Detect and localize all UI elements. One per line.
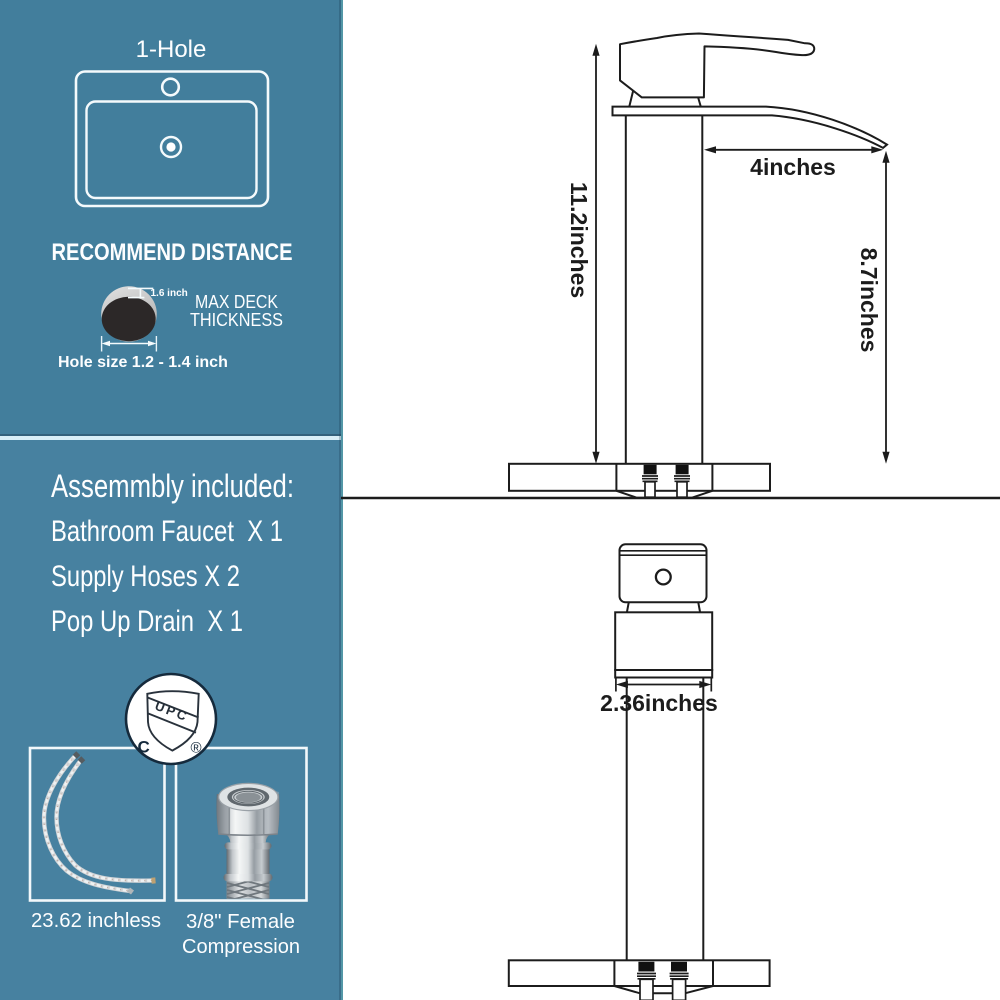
svg-text:®: ® (191, 740, 202, 757)
svg-text:Bathroom Faucet X 1: Bathroom Faucet X 1 (51, 515, 283, 548)
svg-text:Hole size 1.2 - 1.4 inch: Hole size 1.2 - 1.4 inch (58, 354, 228, 371)
svg-text:3/8" Female: 3/8" Female (186, 911, 295, 933)
svg-text:THICKNESS: THICKNESS (190, 310, 283, 330)
svg-text:C: C (138, 738, 150, 757)
svg-text:1.6 inch: 1.6 inch (151, 288, 188, 299)
svg-text:23.62 inchless: 23.62 inchless (31, 910, 161, 932)
svg-text:2.36inches: 2.36inches (600, 690, 718, 716)
svg-text:Supply Hoses X 2: Supply Hoses X 2 (51, 560, 240, 593)
svg-text:1-Hole: 1-Hole (136, 36, 207, 63)
svg-text:11.2inches: 11.2inches (566, 182, 592, 298)
svg-text:MAX DECK: MAX DECK (195, 292, 278, 312)
svg-text:4inches: 4inches (750, 154, 836, 180)
svg-text:Pop Up Drain X 1: Pop Up Drain X 1 (51, 605, 243, 638)
svg-text:8.7inches: 8.7inches (856, 248, 882, 353)
svg-text:Compression: Compression (182, 936, 300, 958)
svg-text:RECOMMEND DISTANCE: RECOMMEND DISTANCE (52, 239, 293, 266)
svg-text:Assemmbly included:: Assemmbly included: (51, 468, 294, 504)
